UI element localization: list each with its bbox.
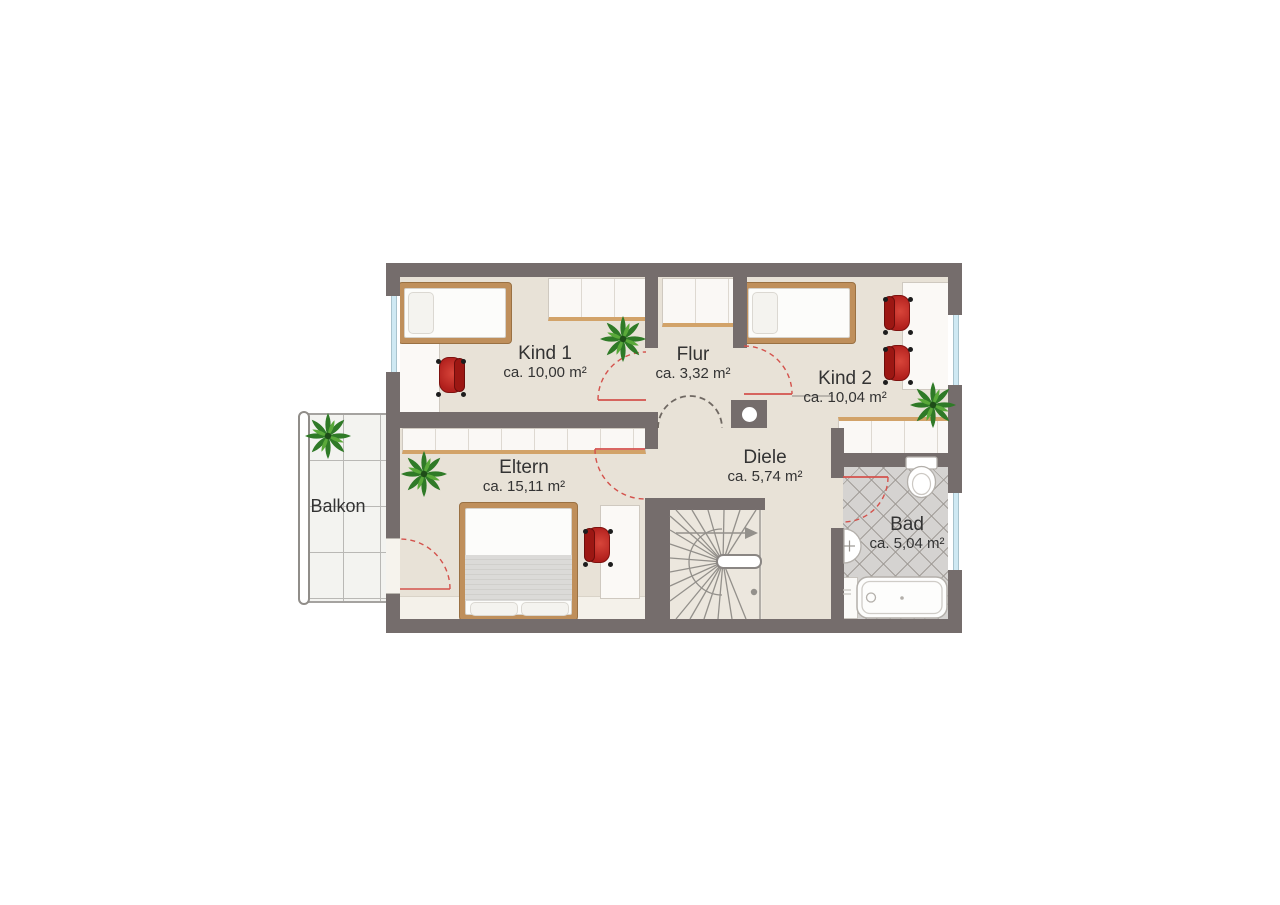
kind1-desk-chair-icon [436,354,466,396]
window-glass [953,493,959,570]
window-glass [953,315,959,385]
eltern-bed-blanket [465,555,572,601]
eltern-double-bed [459,502,578,621]
chair-armrests [883,297,888,302]
kind2-wardrobe [838,417,949,458]
kind2-desk-chair-icon [883,292,913,334]
wall-outer-left-a [386,263,400,296]
window-kind2 [948,315,962,385]
room-name: Eltern [483,458,565,478]
kind1-bed-pillow [408,292,434,334]
room-area: ca. 15,11 m² [483,478,565,495]
room-name: Kind 2 [803,369,886,389]
kind2-bed [742,282,856,344]
room-area: ca. 10,04 m² [803,389,886,406]
wall-outer-bottom [386,619,962,633]
room-area: ca. 5,04 m² [869,535,944,552]
kind2-desk-chair2-icon [883,342,913,384]
window-kind1 [386,296,400,372]
wall-outer-top [386,263,962,277]
room-label-balkon: Balkon [310,496,365,516]
wall-stairs-top [658,498,765,510]
wall-outer-right-a [948,263,962,315]
kind1-desk [398,342,440,414]
window-glass [391,296,397,372]
window-bad [948,493,962,570]
flur-wardrobe [662,278,734,327]
wall-kind2-bad [838,453,948,467]
wall-eltern-diele-b [645,498,658,619]
wall-outer-right-c [948,570,962,633]
eltern-desk-chair-icon [583,524,613,566]
balcony-door-opening [386,538,400,594]
room-label-kind1: Kind 1 ca. 10,00 m² [503,344,586,381]
room-label-bad: Bad ca. 5,04 m² [869,515,944,552]
chair-back [454,358,465,392]
kind1-wardrobe [548,278,646,321]
wall-diele-bad-b [831,528,844,619]
kind2-bed-pillow [752,292,778,334]
room-area: ca. 3,32 m² [655,365,730,382]
room-name: Bad [869,515,944,535]
wall-outer-left-c [386,592,400,633]
room-label-kind2: Kind 2 ca. 10,04 m² [803,369,886,406]
wall-kind1-eltern [400,412,658,428]
chair-armrests [436,359,441,364]
chair-armrests [883,347,888,352]
wall-stairs-left [658,510,670,619]
room-label-diele: Diele ca. 5,74 m² [727,448,802,485]
chair-armrests [583,529,588,534]
room-label-flur: Flur ca. 3,32 m² [655,345,730,382]
room-name: Kind 1 [503,344,586,364]
wall-outer-left-b [386,372,400,538]
room-label-eltern: Eltern ca. 15,11 m² [483,458,565,495]
room-name: Balkon [310,496,365,516]
eltern-bed-pillow-right [521,602,569,616]
wall-diele-bad-a [831,428,844,478]
wall-flur-kind2 [733,277,747,348]
eltern-wardrobe [402,428,646,454]
kind1-bed [398,282,512,344]
balcony-railing [298,411,310,605]
room-area: ca. 5,74 m² [727,468,802,485]
room-area: ca. 10,00 m² [503,364,586,381]
wall-outer-right-b [948,385,962,493]
chimney-flue-icon [742,407,757,422]
wall-kind1-flur [645,277,658,348]
room-name: Flur [655,345,730,365]
floor-plan: Kind 1 ca. 10,00 m² Flur ca. 3,32 m² Kin… [0,0,1280,905]
eltern-bed-pillow-left [470,602,518,616]
wall-eltern-diele-a [645,428,658,449]
room-name: Diele [727,448,802,468]
staircase-floor [670,510,762,619]
